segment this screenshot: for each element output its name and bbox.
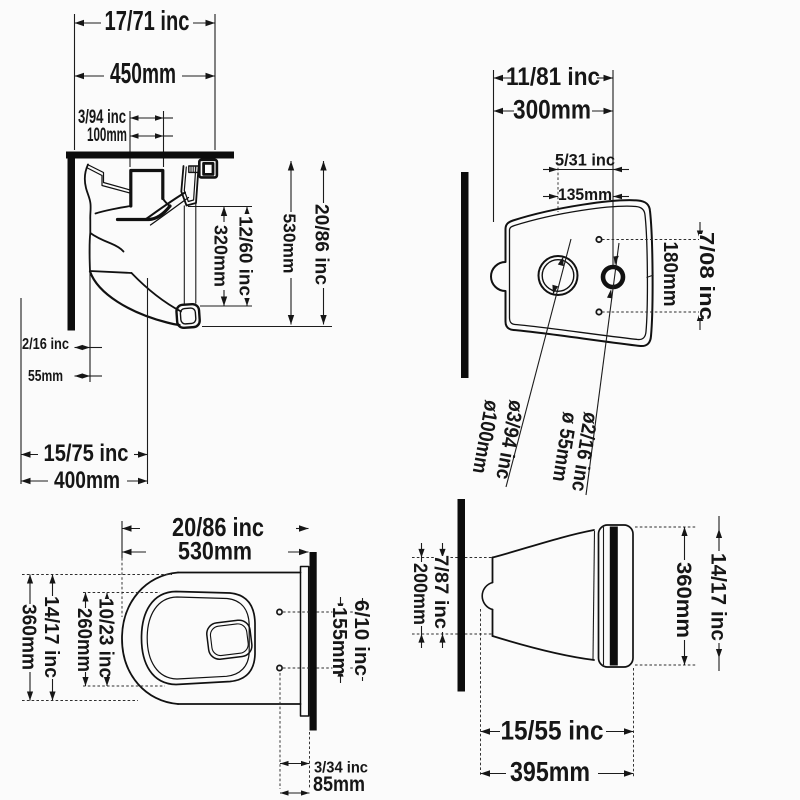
svg-text:20/86 inc: 20/86 inc <box>311 204 332 285</box>
svg-text:395mm: 395mm <box>510 756 590 787</box>
svg-text:17/71 inc: 17/71 inc <box>105 5 190 36</box>
svg-text:400mm: 400mm <box>54 467 120 494</box>
svg-text:260mm: 260mm <box>73 608 95 672</box>
svg-text:7/08 inc: 7/08 inc <box>695 232 717 320</box>
svg-text:7/87 inc: 7/87 inc <box>430 555 451 629</box>
svg-text:14/17 inc: 14/17 inc <box>707 553 730 641</box>
svg-text:10/23 inc: 10/23 inc <box>95 598 117 678</box>
svg-text:360mm: 360mm <box>672 562 695 638</box>
svg-text:12/60 inc: 12/60 inc <box>236 216 257 296</box>
svg-text:360mm: 360mm <box>18 604 40 670</box>
svg-text:200mm: 200mm <box>409 563 430 625</box>
svg-text:11/81 inc: 11/81 inc <box>506 63 600 91</box>
svg-text:155mm: 155mm <box>328 607 350 675</box>
svg-text:100mm: 100mm <box>87 125 127 146</box>
svg-text:5/31 inc: 5/31 inc <box>555 152 615 170</box>
svg-text:15/55 inc: 15/55 inc <box>501 716 604 746</box>
svg-text:450mm: 450mm <box>110 58 176 90</box>
svg-text:530mm: 530mm <box>280 214 300 274</box>
svg-text:320mm: 320mm <box>211 225 231 287</box>
svg-text:14/17 inc: 14/17 inc <box>40 596 62 678</box>
svg-text:15/75 inc: 15/75 inc <box>44 440 129 467</box>
svg-text:180mm: 180mm <box>659 242 681 307</box>
svg-text:300mm: 300mm <box>513 95 591 125</box>
svg-text:530mm: 530mm <box>178 538 252 566</box>
svg-text:6/10 inc: 6/10 inc <box>350 600 372 676</box>
svg-text:85mm: 85mm <box>313 773 365 796</box>
svg-text:55mm: 55mm <box>28 368 63 385</box>
svg-text:2/16 inc: 2/16 inc <box>22 336 69 353</box>
